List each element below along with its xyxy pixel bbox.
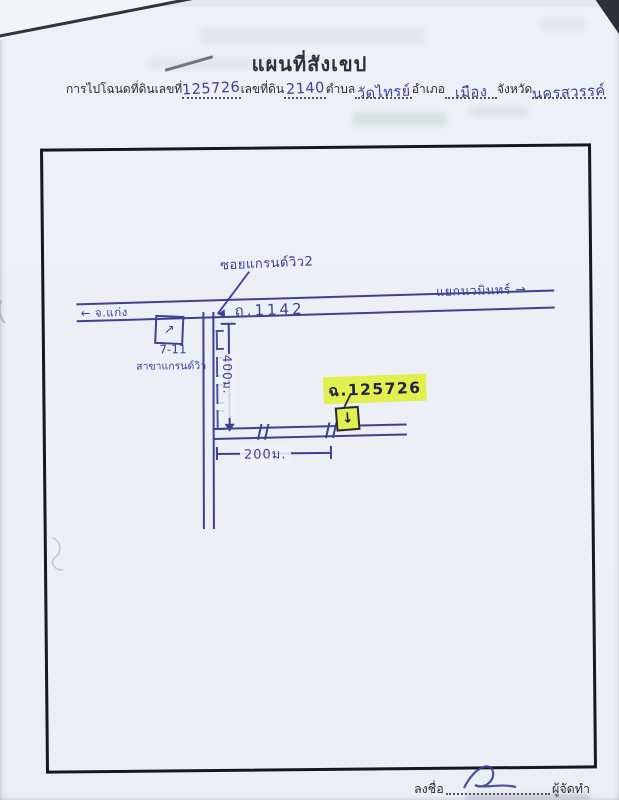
store-arrow-icon: ↗ xyxy=(163,322,175,337)
lane-bottom-line xyxy=(213,433,407,440)
deed-number-value: 125726 xyxy=(182,79,241,98)
tambon-field: วัดไทรย์ xyxy=(355,80,412,99)
horizontal-distance-label: 200ม. xyxy=(240,443,291,464)
parcel-arrow-icon: ↓ xyxy=(341,410,354,427)
parcel-number-value: 2140 xyxy=(285,80,325,98)
province-label: จังหวัด xyxy=(497,80,532,99)
tambon-label: ตำบล xyxy=(326,80,356,99)
left-margin-mark: ( xyxy=(0,296,8,327)
direction-left: ← จ.แก่ง xyxy=(80,304,128,323)
left-arrow-icon: ← xyxy=(80,306,91,320)
right-arrow-icon: → xyxy=(515,281,526,296)
province-value: นครสวรรค์ xyxy=(532,79,607,106)
vertical-dimension-top-tick xyxy=(221,323,236,325)
direction-right: แยกนวมินทร์ → xyxy=(436,279,527,302)
parcel-number-label: เลขที่ดิน xyxy=(241,80,285,99)
horizontal-dimension: 200ม. xyxy=(216,446,332,461)
cut-off-text xyxy=(466,794,590,800)
scanned-document-sheet: ( แผนที่สังเขป การไปโฉนดที่ดินเลขที่1257… xyxy=(0,0,619,800)
main-road: ← จ.แก่ง ถ.1142 แยกนวมินทร์ → xyxy=(76,288,554,324)
page-title: แผนที่สังเขป xyxy=(0,48,619,80)
direction-left-label: จ.แก่ง xyxy=(95,305,128,320)
amphoe-value: เมือง xyxy=(454,80,487,105)
soi-road xyxy=(202,312,215,529)
deed-number-field: 125726 xyxy=(182,80,240,99)
store-box: ↗ xyxy=(154,315,184,345)
direction-right-label: แยกนวมินทร์ xyxy=(436,282,511,299)
soi-road-right-line xyxy=(212,312,215,529)
deed-info-line: การไปโฉนดที่ดินเลขที่125726เลขที่ดิน2140… xyxy=(66,80,606,99)
lane-top-line xyxy=(213,423,407,430)
ghost-bleedthrough-text xyxy=(352,112,447,126)
tambon-value: วัดไทรย์ xyxy=(356,80,411,106)
ghost-bleedthrough-text xyxy=(470,106,528,117)
soi-pointer-arrow xyxy=(209,268,260,323)
scan-smudge xyxy=(41,531,75,577)
parcel-number-field: 2140 xyxy=(284,80,326,99)
main-road-bottom-line xyxy=(77,307,555,323)
amphoe-label: อำเภอ xyxy=(412,80,445,99)
parcel-marker-box: ↓ xyxy=(335,406,361,432)
segment-bracket xyxy=(216,330,224,350)
ghost-bleedthrough-text xyxy=(200,28,425,44)
sign-label: ลงชื่อ xyxy=(414,779,444,799)
store-branch: สาขาแกรนด์วิว xyxy=(123,357,219,375)
amphoe-field: เมือง xyxy=(445,80,497,99)
access-lane xyxy=(213,423,407,440)
province-field: นครสวรรค์ xyxy=(532,80,606,99)
ghost-bleedthrough-text xyxy=(540,18,586,31)
deed-number-label: การไปโฉนดที่ดินเลขที่ xyxy=(66,80,182,99)
store-name: 7-11 xyxy=(143,342,203,357)
vertical-distance-label: 400ม. xyxy=(218,354,238,418)
signature-scribble xyxy=(458,762,528,794)
map-frame: ← จ.แก่ง ถ.1142 แยกนวมินทร์ → ซอยแกรนด์ว… xyxy=(40,143,597,773)
